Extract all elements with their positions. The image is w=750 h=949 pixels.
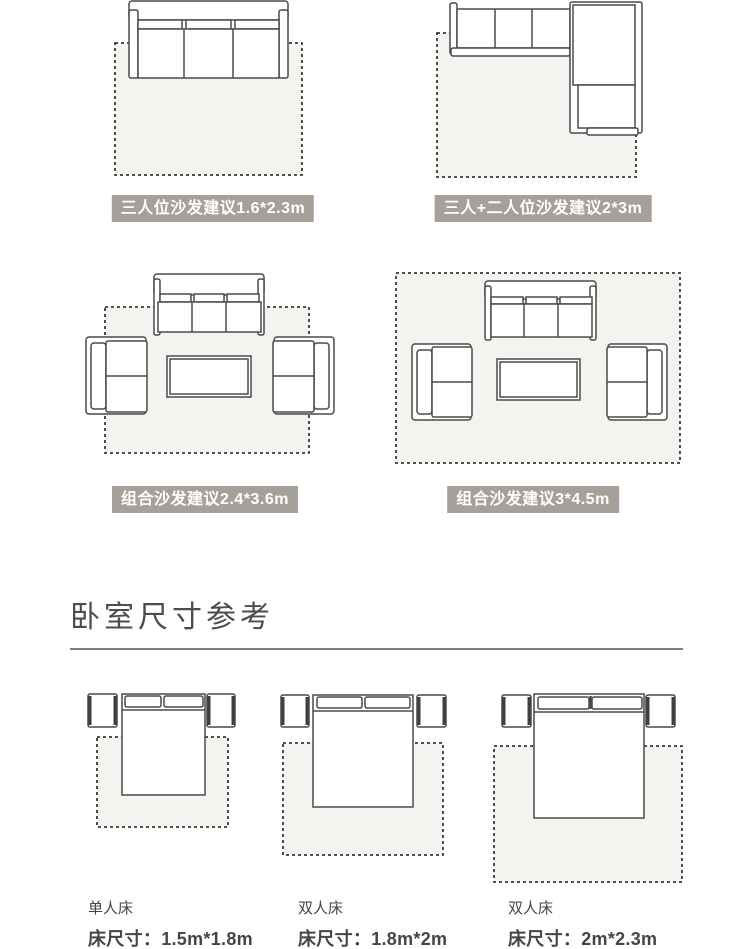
bed-size-label: 床尺寸：1.5m*1.8m [88,925,253,949]
bedroom-section-heading: 卧室尺寸参考 [70,592,274,636]
nightstand-right [646,695,675,727]
table-inner [170,359,248,394]
sofa-arm-left [485,286,491,340]
backrest-segment [227,294,259,302]
armchair-right [607,344,667,420]
sofa-three-seat [129,1,288,78]
bed-size-label: 床尺寸：1.8m*2m [298,925,447,949]
three-seat-sofa-diagram [100,0,310,180]
chair-back [91,343,106,409]
sofa-front-rail [451,48,570,56]
armchair-right [273,337,334,414]
chair-back [647,350,662,414]
combo-sofa-large-diagram [390,260,685,470]
sofa-arm-right [279,10,288,78]
backrest-segment [491,297,523,304]
pillow [365,697,410,708]
nightstand-left [281,695,309,727]
seat-cushions [491,304,592,337]
backrest-segment [186,20,231,29]
seat-cushions [158,302,261,332]
backrest-segment [194,294,224,302]
pillow [592,697,642,709]
nightstand-right [207,694,235,727]
chair-back [417,350,432,414]
armchair-left [412,344,472,420]
sofa-three-seat [485,281,596,340]
bed-frame [122,694,205,795]
bed-caption-double-medium: 双人床 床尺寸：1.8m*2m [298,897,447,949]
size-badge-three-seat: 三人位沙发建议1.6*2.3m [112,195,314,222]
pillow [125,696,161,707]
bed-type-label: 双人床 [508,897,657,918]
double-bed-diagram [275,680,455,860]
sofa-three-seat [154,274,264,335]
armchair-left [86,337,147,414]
bed-caption-double-large: 双人床 床尺寸：2m*2.3m [508,897,657,949]
chaise-seat-lower [578,85,635,128]
seat-cushions [138,29,279,78]
nightstand-left [502,695,531,727]
chaise-front-rail [587,128,638,135]
bed-frame [313,695,413,807]
bed-type-label: 单人床 [88,897,253,918]
bed [122,694,205,795]
rug-size-guide-infographic: 三人位沙发建议1.6*2.3m 三人+二人位沙发建议2*3m [0,0,750,949]
backrest-segment [560,297,592,304]
backrest-segment [138,20,182,29]
size-badge-combo-medium: 组合沙发建议2.4*3.6m [112,486,298,513]
sofa-back [129,1,288,20]
chair-back [314,343,329,409]
bed-type-label: 双人床 [298,897,447,918]
bed [534,694,644,818]
sofa-arm-left [129,10,138,78]
l-shaped-sofa-diagram [420,0,665,185]
nightstand-left [88,694,117,727]
sofa-back [154,274,264,295]
bed-caption-single: 单人床 床尺寸：1.5m*1.8m [88,897,253,949]
bed [313,695,413,807]
table-inner [500,362,577,397]
backrest-segment [526,297,557,304]
size-badge-combo-large: 组合沙发建议3*4.5m [447,486,619,513]
single-bed-diagram [75,680,245,840]
seat-cushions [457,9,570,48]
coffee-table [497,359,580,400]
pillow [317,697,362,708]
bed-size-label: 床尺寸：2m*2.3m [508,925,657,949]
size-badge-l-shaped: 三人+二人位沙发建议2*3m [435,195,652,222]
backrest-segment [235,20,279,29]
double-bed-large-diagram [485,680,690,885]
pillow [164,696,203,707]
sofa-arm-left [450,3,457,54]
nightstand-right [417,695,446,727]
backrest-segment [160,294,191,302]
section-divider [70,648,683,650]
combo-sofa-medium-diagram [80,260,350,470]
coffee-table [167,356,251,397]
pillow [538,697,589,709]
chaise-seat-upper [573,5,635,85]
